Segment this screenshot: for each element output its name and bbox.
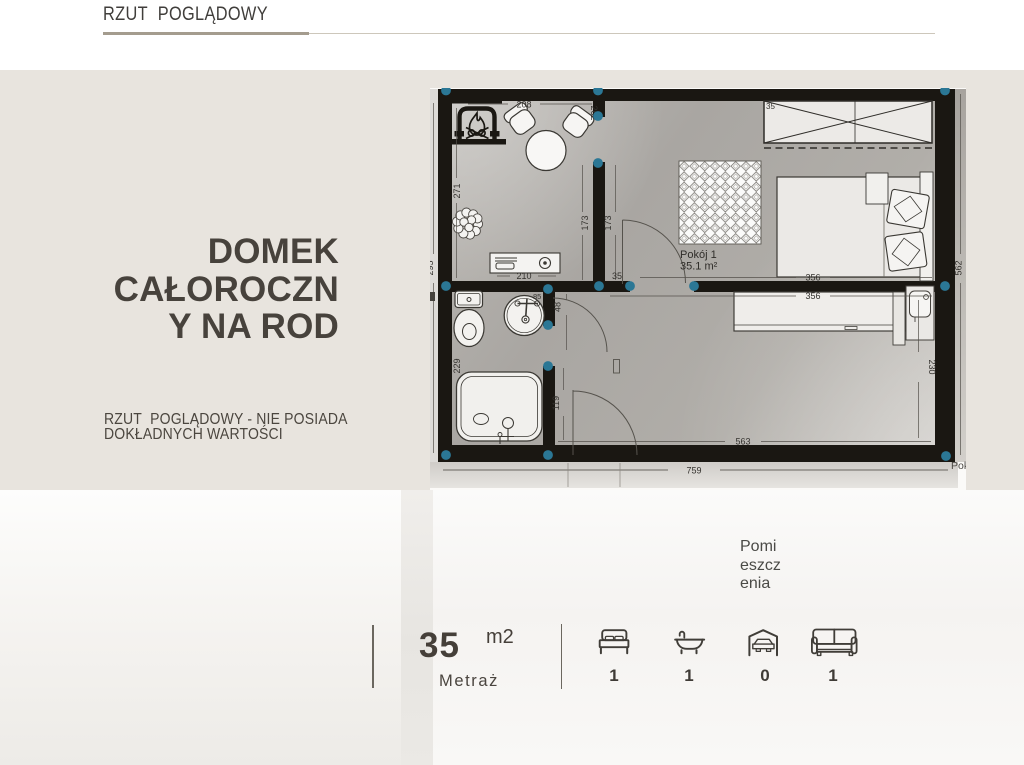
svg-text:85: 85: [533, 292, 541, 301]
svg-text:Pokój 1: Pokój 1: [680, 249, 717, 261]
svg-text:229: 229: [452, 358, 462, 373]
svg-text:295: 295: [430, 260, 435, 275]
svg-text:173: 173: [603, 215, 613, 230]
svg-text:35: 35: [766, 102, 775, 111]
svg-text:356: 356: [805, 273, 820, 283]
svg-text:562: 562: [954, 260, 964, 275]
svg-text:563: 563: [735, 437, 750, 447]
svg-text:48: 48: [553, 302, 563, 312]
svg-text:173: 173: [580, 215, 590, 230]
svg-text:271: 271: [452, 183, 462, 198]
svg-text:119: 119: [551, 396, 561, 410]
svg-text:759: 759: [686, 466, 701, 476]
svg-text:210: 210: [516, 271, 531, 281]
svg-text:Pok: Pok: [951, 460, 966, 472]
svg-text:35.1 m²: 35.1 m²: [680, 261, 718, 273]
svg-text:35: 35: [612, 271, 622, 281]
svg-text:356: 356: [805, 291, 820, 301]
svg-text:208: 208: [516, 100, 531, 110]
svg-text:230: 230: [927, 359, 937, 374]
